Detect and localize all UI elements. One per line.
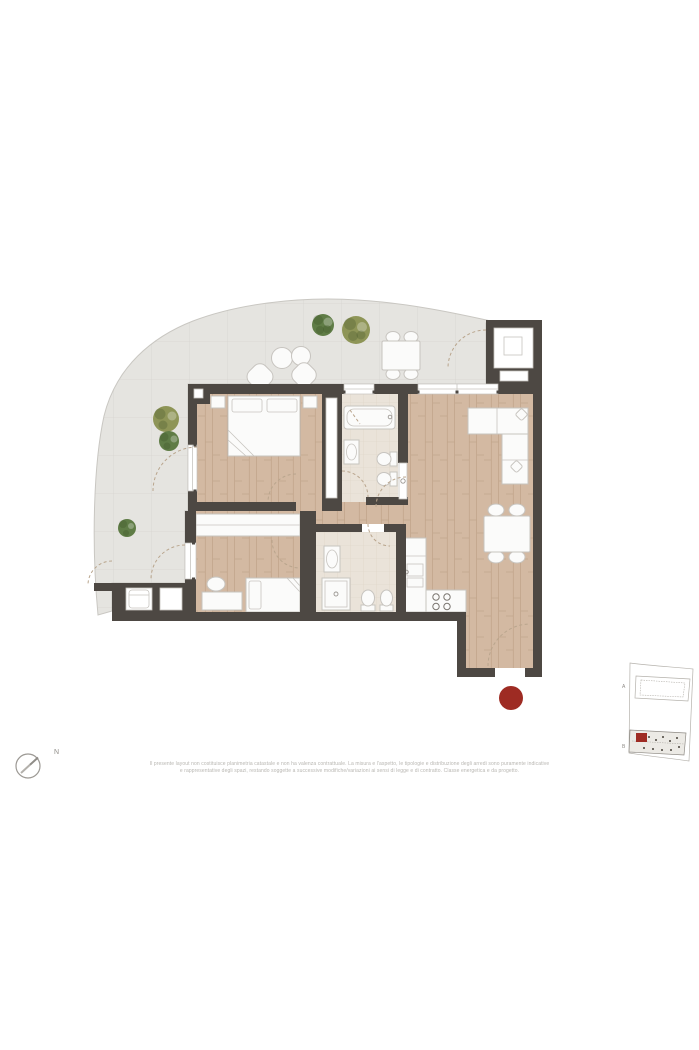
key-plan-unit-highlight bbox=[636, 733, 647, 742]
storage-closet bbox=[160, 588, 182, 610]
bidet-bowl bbox=[381, 590, 393, 606]
wall-segment bbox=[112, 612, 466, 621]
compass-north-label: N bbox=[54, 749, 59, 756]
wall-segment bbox=[94, 583, 114, 591]
floor-plan-drawing: A B bbox=[0, 0, 699, 1050]
wall-segment bbox=[457, 668, 495, 677]
window bbox=[188, 444, 197, 493]
wall-niche bbox=[500, 371, 528, 381]
tree bbox=[153, 406, 179, 432]
window bbox=[343, 384, 376, 394]
toilet-bowl bbox=[377, 453, 391, 466]
dining-chair bbox=[509, 551, 525, 563]
wall-segment bbox=[398, 394, 408, 463]
tree bbox=[159, 431, 179, 451]
dining-chair bbox=[509, 504, 525, 516]
wall-segment bbox=[486, 328, 494, 368]
shower bbox=[322, 578, 350, 610]
desk bbox=[202, 592, 242, 610]
desk-chair bbox=[207, 577, 225, 591]
wall-segment bbox=[384, 524, 396, 532]
outdoor-side-table bbox=[292, 347, 311, 366]
floor-plan-page: A B N Il presente layout non costituisce… bbox=[0, 0, 699, 1050]
wall-segment bbox=[533, 320, 542, 677]
key-plan-building-b-label: B bbox=[622, 744, 626, 750]
double-bed bbox=[228, 396, 300, 456]
compass-dial bbox=[12, 748, 46, 782]
laundry-closet bbox=[126, 588, 152, 610]
hall-wardrobe bbox=[326, 398, 337, 498]
wall-segment bbox=[396, 524, 406, 612]
pillar-detail bbox=[194, 389, 203, 398]
elevator-lobby bbox=[494, 328, 533, 368]
tree bbox=[312, 314, 334, 336]
key-plan: A B bbox=[622, 663, 693, 761]
dining-chair bbox=[488, 504, 504, 516]
bidet-bowl bbox=[377, 473, 391, 486]
key-plan-building-a bbox=[635, 676, 690, 701]
disclaimer-line-1: Il presente layout non costituisce plani… bbox=[120, 761, 580, 768]
window bbox=[417, 384, 500, 394]
wall-segment bbox=[112, 583, 196, 612]
entrance-marker bbox=[499, 686, 523, 710]
kitchen-counter bbox=[426, 590, 466, 612]
dining-table bbox=[484, 516, 530, 552]
disclaimer-line-2: e rappresentative degli spazi, restando … bbox=[120, 768, 580, 775]
dining-chair bbox=[488, 551, 504, 563]
nightstand bbox=[303, 396, 317, 408]
sliding-door-panel bbox=[399, 463, 407, 499]
wall-segment bbox=[188, 502, 296, 511]
key-plan-building-b bbox=[629, 730, 686, 755]
wall-segment bbox=[300, 511, 316, 612]
disclaimer: Il presente layout non costituisce plani… bbox=[120, 761, 580, 775]
toilet-bowl bbox=[362, 590, 375, 606]
outdoor-dining-table bbox=[382, 341, 420, 370]
corner-sofa-chaise bbox=[502, 434, 528, 484]
outdoor-side-table bbox=[272, 348, 293, 369]
tree bbox=[342, 316, 370, 344]
wall-segment bbox=[316, 524, 362, 532]
key-plan-building-a-label: A bbox=[622, 684, 626, 690]
nightstand bbox=[211, 396, 225, 408]
wall-segment bbox=[486, 320, 533, 328]
tree bbox=[118, 519, 136, 537]
compass: N bbox=[12, 748, 72, 784]
window bbox=[185, 542, 196, 581]
